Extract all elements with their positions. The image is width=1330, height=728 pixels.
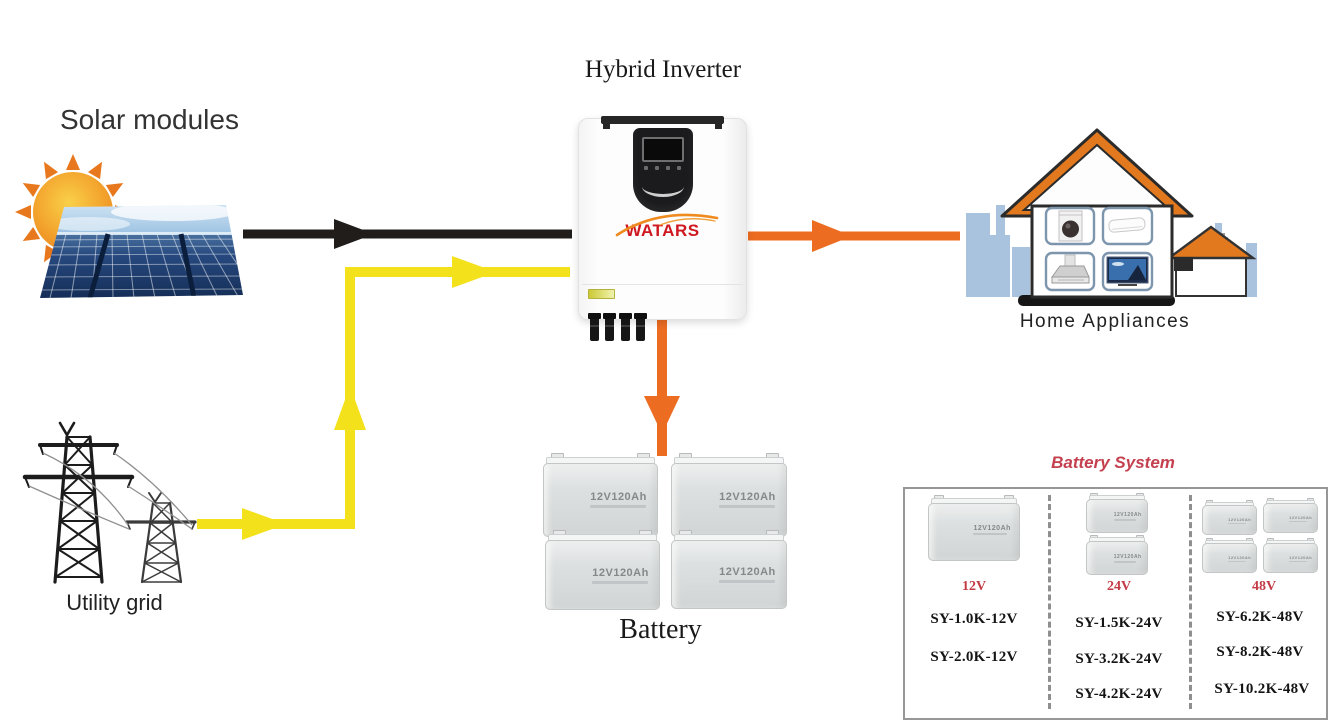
solar-system-diagram: Solar modules bbox=[0, 0, 1330, 728]
battery-unit-48v: 12V120Ah bbox=[1202, 543, 1257, 573]
inverter-control-panel bbox=[633, 128, 693, 212]
battery-unit-12v: 12V120Ah bbox=[928, 503, 1020, 561]
pv-connector bbox=[636, 315, 645, 341]
arrow-head bbox=[334, 386, 366, 430]
range-hood-icon bbox=[1046, 253, 1094, 290]
control-button bbox=[644, 166, 648, 170]
solar-to-inverter-arrow bbox=[243, 219, 572, 249]
pv-connector bbox=[621, 315, 630, 341]
tv-icon bbox=[1103, 253, 1152, 290]
control-button bbox=[666, 166, 670, 170]
battery-unit-48v: 12V120Ah bbox=[1263, 543, 1318, 573]
voltage-label-48v: 48V bbox=[1234, 579, 1294, 595]
hybrid-inverter-device: WATARS bbox=[578, 118, 747, 320]
battery-system-title: Battery System bbox=[1033, 453, 1193, 473]
battery-unit-24v: 12V120Ah bbox=[1086, 541, 1148, 575]
pv-connector bbox=[590, 315, 599, 341]
panel-accent-curve bbox=[642, 176, 684, 197]
column-divider bbox=[1189, 495, 1192, 709]
inverter-to-battery-arrow bbox=[644, 320, 680, 456]
inverter-mount-bar bbox=[601, 116, 724, 124]
battery-system-panel: 12V120Ah 12V SY-1.0K-12V SY-2.0K-12V 12V… bbox=[903, 487, 1328, 720]
battery-bank-label: Battery bbox=[598, 614, 723, 646]
utility-tower-icon bbox=[15, 415, 210, 587]
lcd-display bbox=[642, 137, 684, 162]
model-label: SY-2.0K-12V bbox=[908, 649, 1040, 666]
pv-connector bbox=[605, 315, 614, 341]
battery-capacity-label: 12V120Ah bbox=[719, 491, 776, 503]
battery-capacity-label: 12V120Ah bbox=[590, 491, 647, 503]
model-label: SY-6.2K-48V bbox=[1194, 609, 1326, 626]
arrow-head bbox=[242, 508, 286, 540]
solar-panel-icon bbox=[28, 192, 253, 304]
model-label: SY-4.2K-24V bbox=[1053, 686, 1185, 703]
battery-unit-24v: 12V120Ah bbox=[1086, 499, 1148, 533]
voltage-label-24v: 24V bbox=[1089, 579, 1149, 595]
air-conditioner-icon bbox=[1103, 208, 1152, 244]
battery-capacity-label: 12V120Ah bbox=[719, 566, 776, 578]
arrow-head bbox=[452, 256, 496, 288]
battery-unit: 12V120Ah bbox=[671, 540, 787, 609]
solar-modules-label: Solar modules bbox=[60, 104, 239, 136]
control-button bbox=[677, 166, 681, 170]
inverter-title: Hybrid Inverter bbox=[568, 56, 758, 84]
battery-unit: 12V120Ah bbox=[671, 463, 787, 537]
arrow-head bbox=[644, 396, 680, 434]
battery-unit-48v: 12V120Ah bbox=[1202, 505, 1257, 535]
inverter-to-home-arrow bbox=[748, 220, 960, 252]
model-label: SY-1.0K-12V bbox=[908, 611, 1040, 628]
inverter-seam bbox=[582, 284, 743, 285]
warning-sticker bbox=[588, 289, 615, 299]
arrow-head bbox=[812, 220, 852, 252]
battery-unit: 12V120Ah bbox=[543, 463, 658, 537]
brand-swoosh-icon bbox=[605, 211, 723, 241]
model-label: SY-10.2K-48V bbox=[1196, 681, 1328, 698]
battery-capacity-label: 12V120Ah bbox=[592, 567, 649, 579]
control-button bbox=[655, 166, 659, 170]
small-house-icon bbox=[1169, 227, 1253, 296]
model-label: SY-1.5K-24V bbox=[1053, 615, 1185, 632]
house-icon bbox=[960, 125, 1260, 315]
model-label: SY-3.2K-24V bbox=[1053, 651, 1185, 668]
column-divider bbox=[1048, 495, 1051, 709]
utility-grid-label: Utility grid bbox=[42, 590, 187, 616]
battery-unit-48v: 12V120Ah bbox=[1263, 503, 1318, 533]
battery-unit: 12V120Ah bbox=[545, 540, 660, 610]
washing-machine-icon bbox=[1046, 208, 1094, 244]
model-label: SY-8.2K-48V bbox=[1194, 644, 1326, 661]
voltage-label-12v: 12V bbox=[944, 579, 1004, 595]
arrow-line bbox=[197, 272, 570, 524]
arrow-head bbox=[334, 219, 374, 249]
